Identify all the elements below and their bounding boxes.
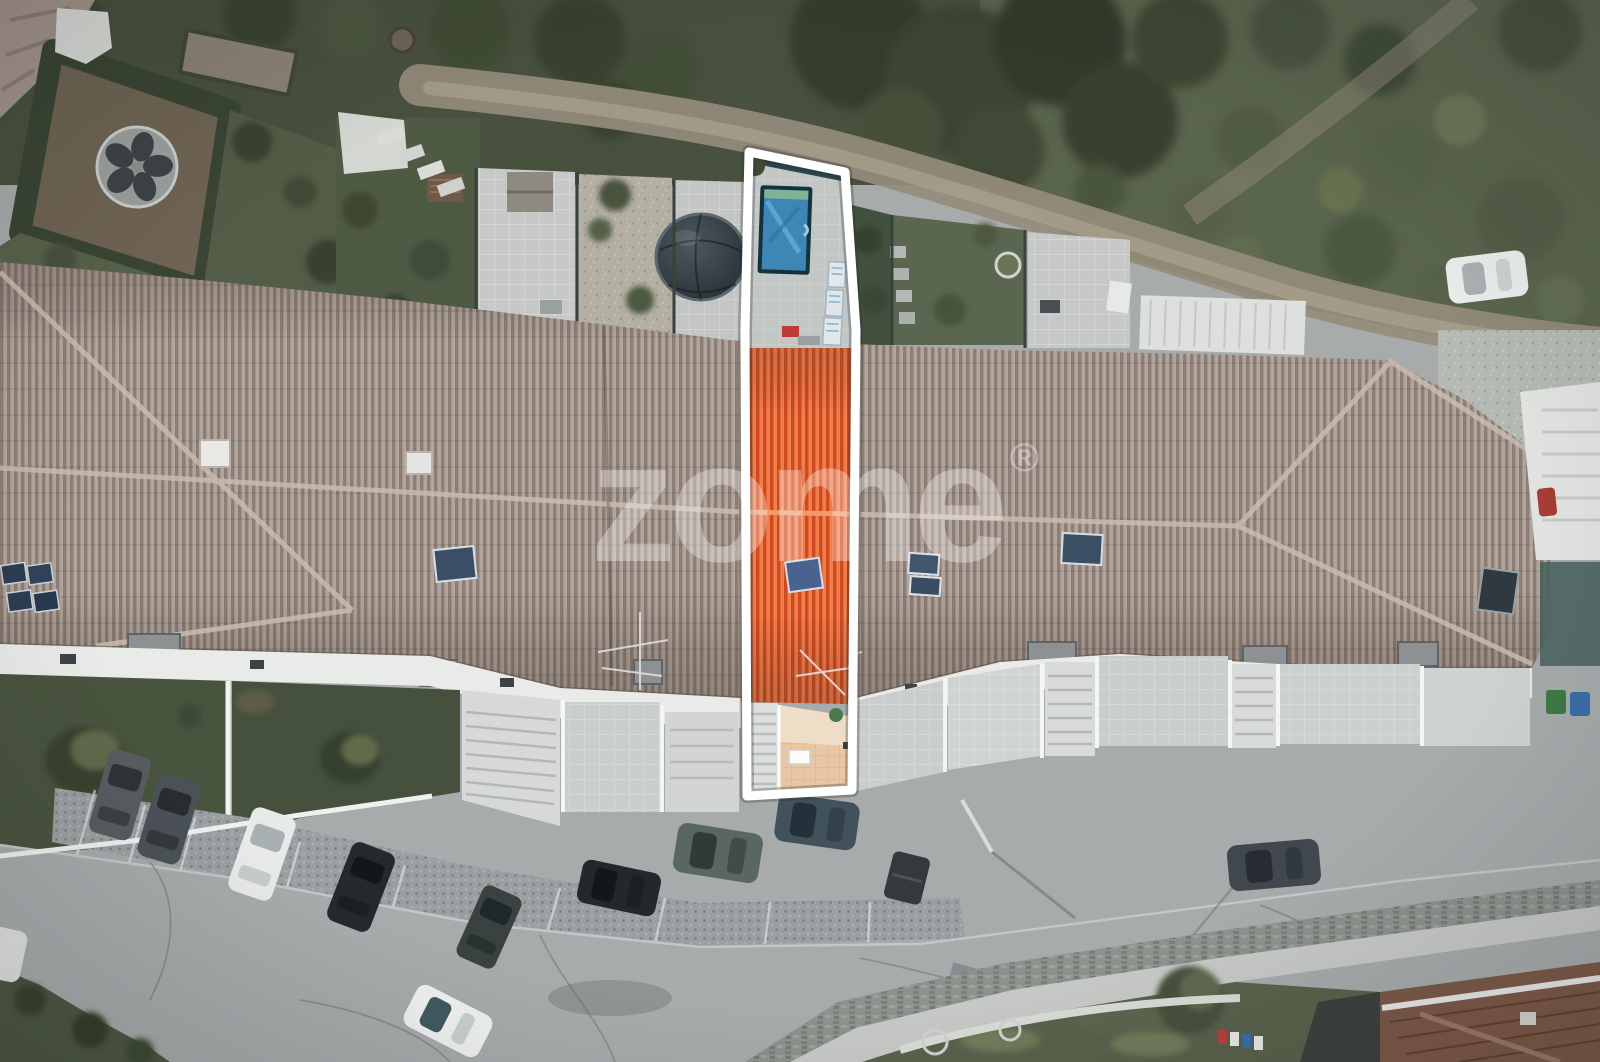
aerial-photo: zome® [0, 0, 1600, 1062]
aerial-photo-canvas [0, 0, 1600, 1062]
vignette-overlay [0, 0, 1600, 1062]
